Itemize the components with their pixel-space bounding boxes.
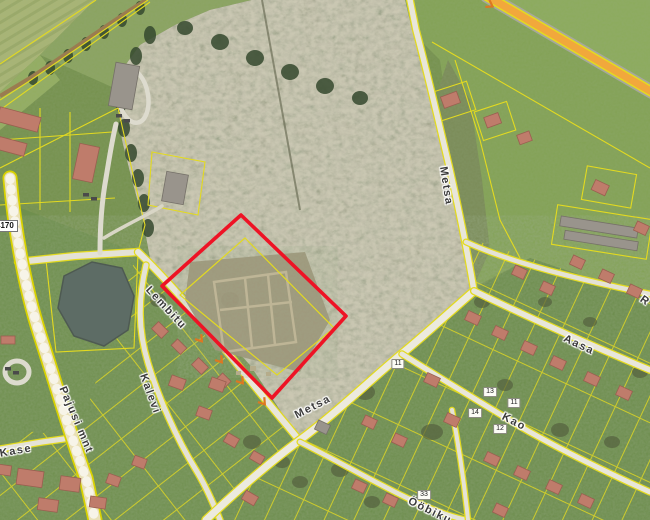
map-viewport[interactable]: LembituKaleviPajusi mntKaseMetsaMetsaAas… [0, 0, 650, 520]
map-canvas [0, 0, 650, 520]
